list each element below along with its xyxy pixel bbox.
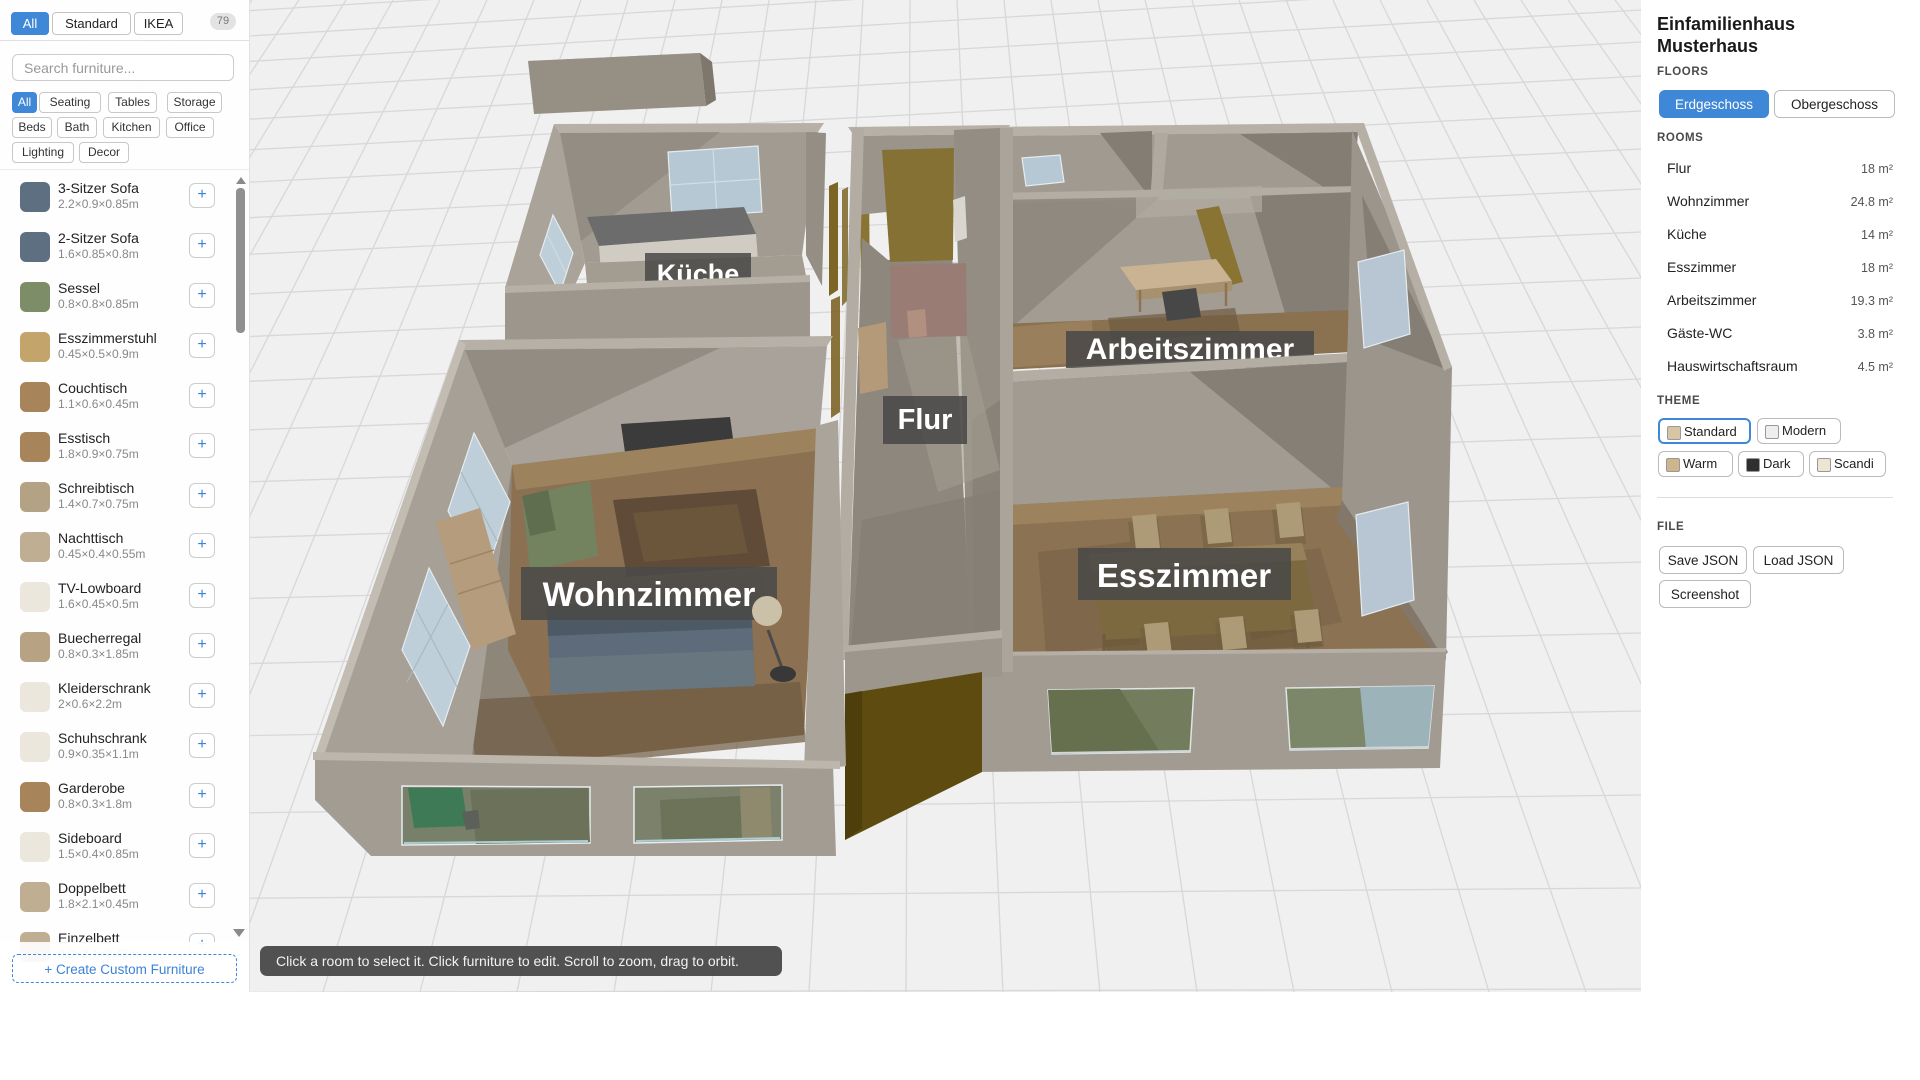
svg-text:Esszimmer: Esszimmer [1097, 557, 1271, 594]
svg-text:Click a room to select it. Cli: Click a room to select it. Click furnitu… [276, 953, 739, 969]
svg-text:Flur: Flur [898, 404, 953, 436]
svg-text:Wohnzimmer: Wohnzimmer [543, 576, 756, 614]
